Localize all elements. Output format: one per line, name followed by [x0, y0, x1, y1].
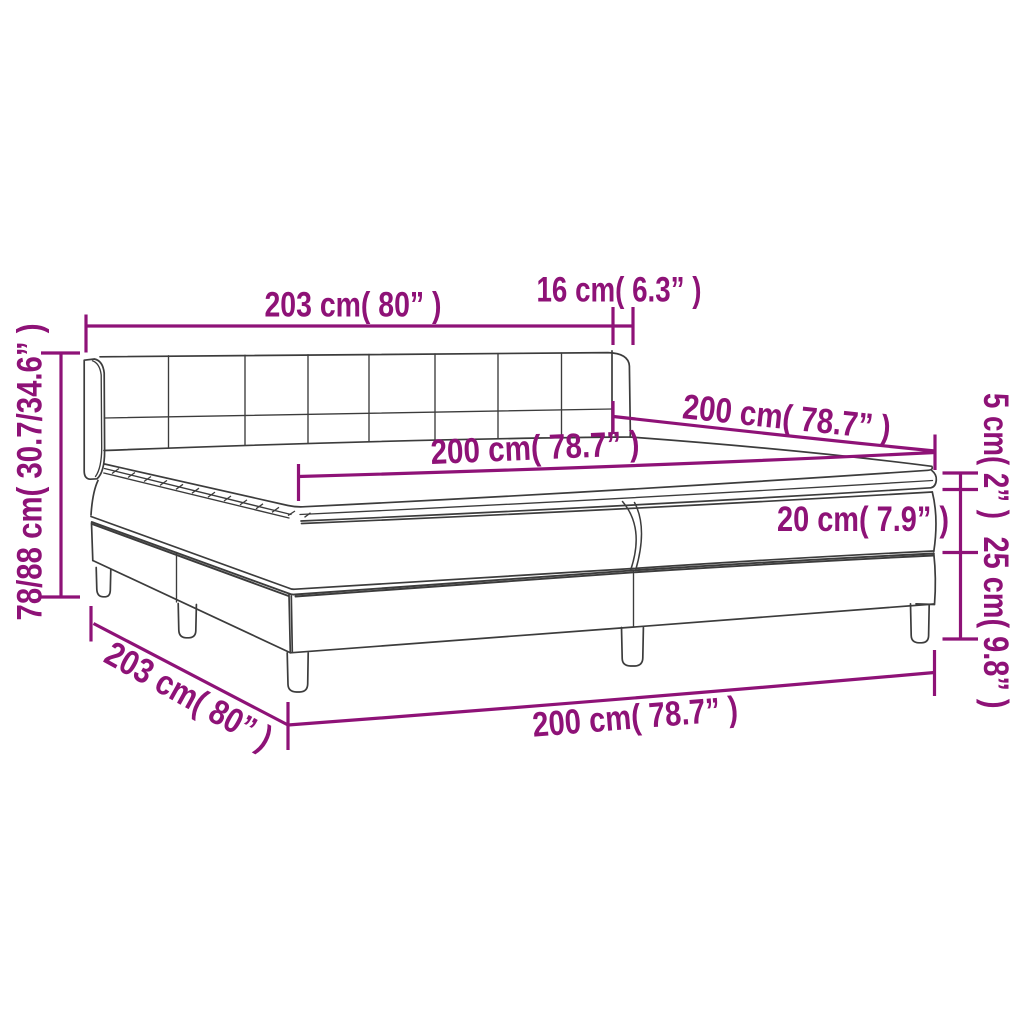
svg-text:20 cm( 7.9” ): 20 cm( 7.9” ): [777, 500, 949, 539]
svg-text:78/88 cm( 30.7/34.6” ): 78/88 cm( 30.7/34.6” ): [11, 324, 50, 621]
svg-text:203 cm( 80” ): 203 cm( 80” ): [265, 286, 442, 325]
svg-text:25 cm( 9.8” ): 25 cm( 9.8” ): [976, 537, 1015, 709]
svg-text:5 cm( 2” ): 5 cm( 2” ): [976, 393, 1015, 519]
svg-text:16 cm( 6.3” ): 16 cm( 6.3” ): [537, 271, 702, 310]
